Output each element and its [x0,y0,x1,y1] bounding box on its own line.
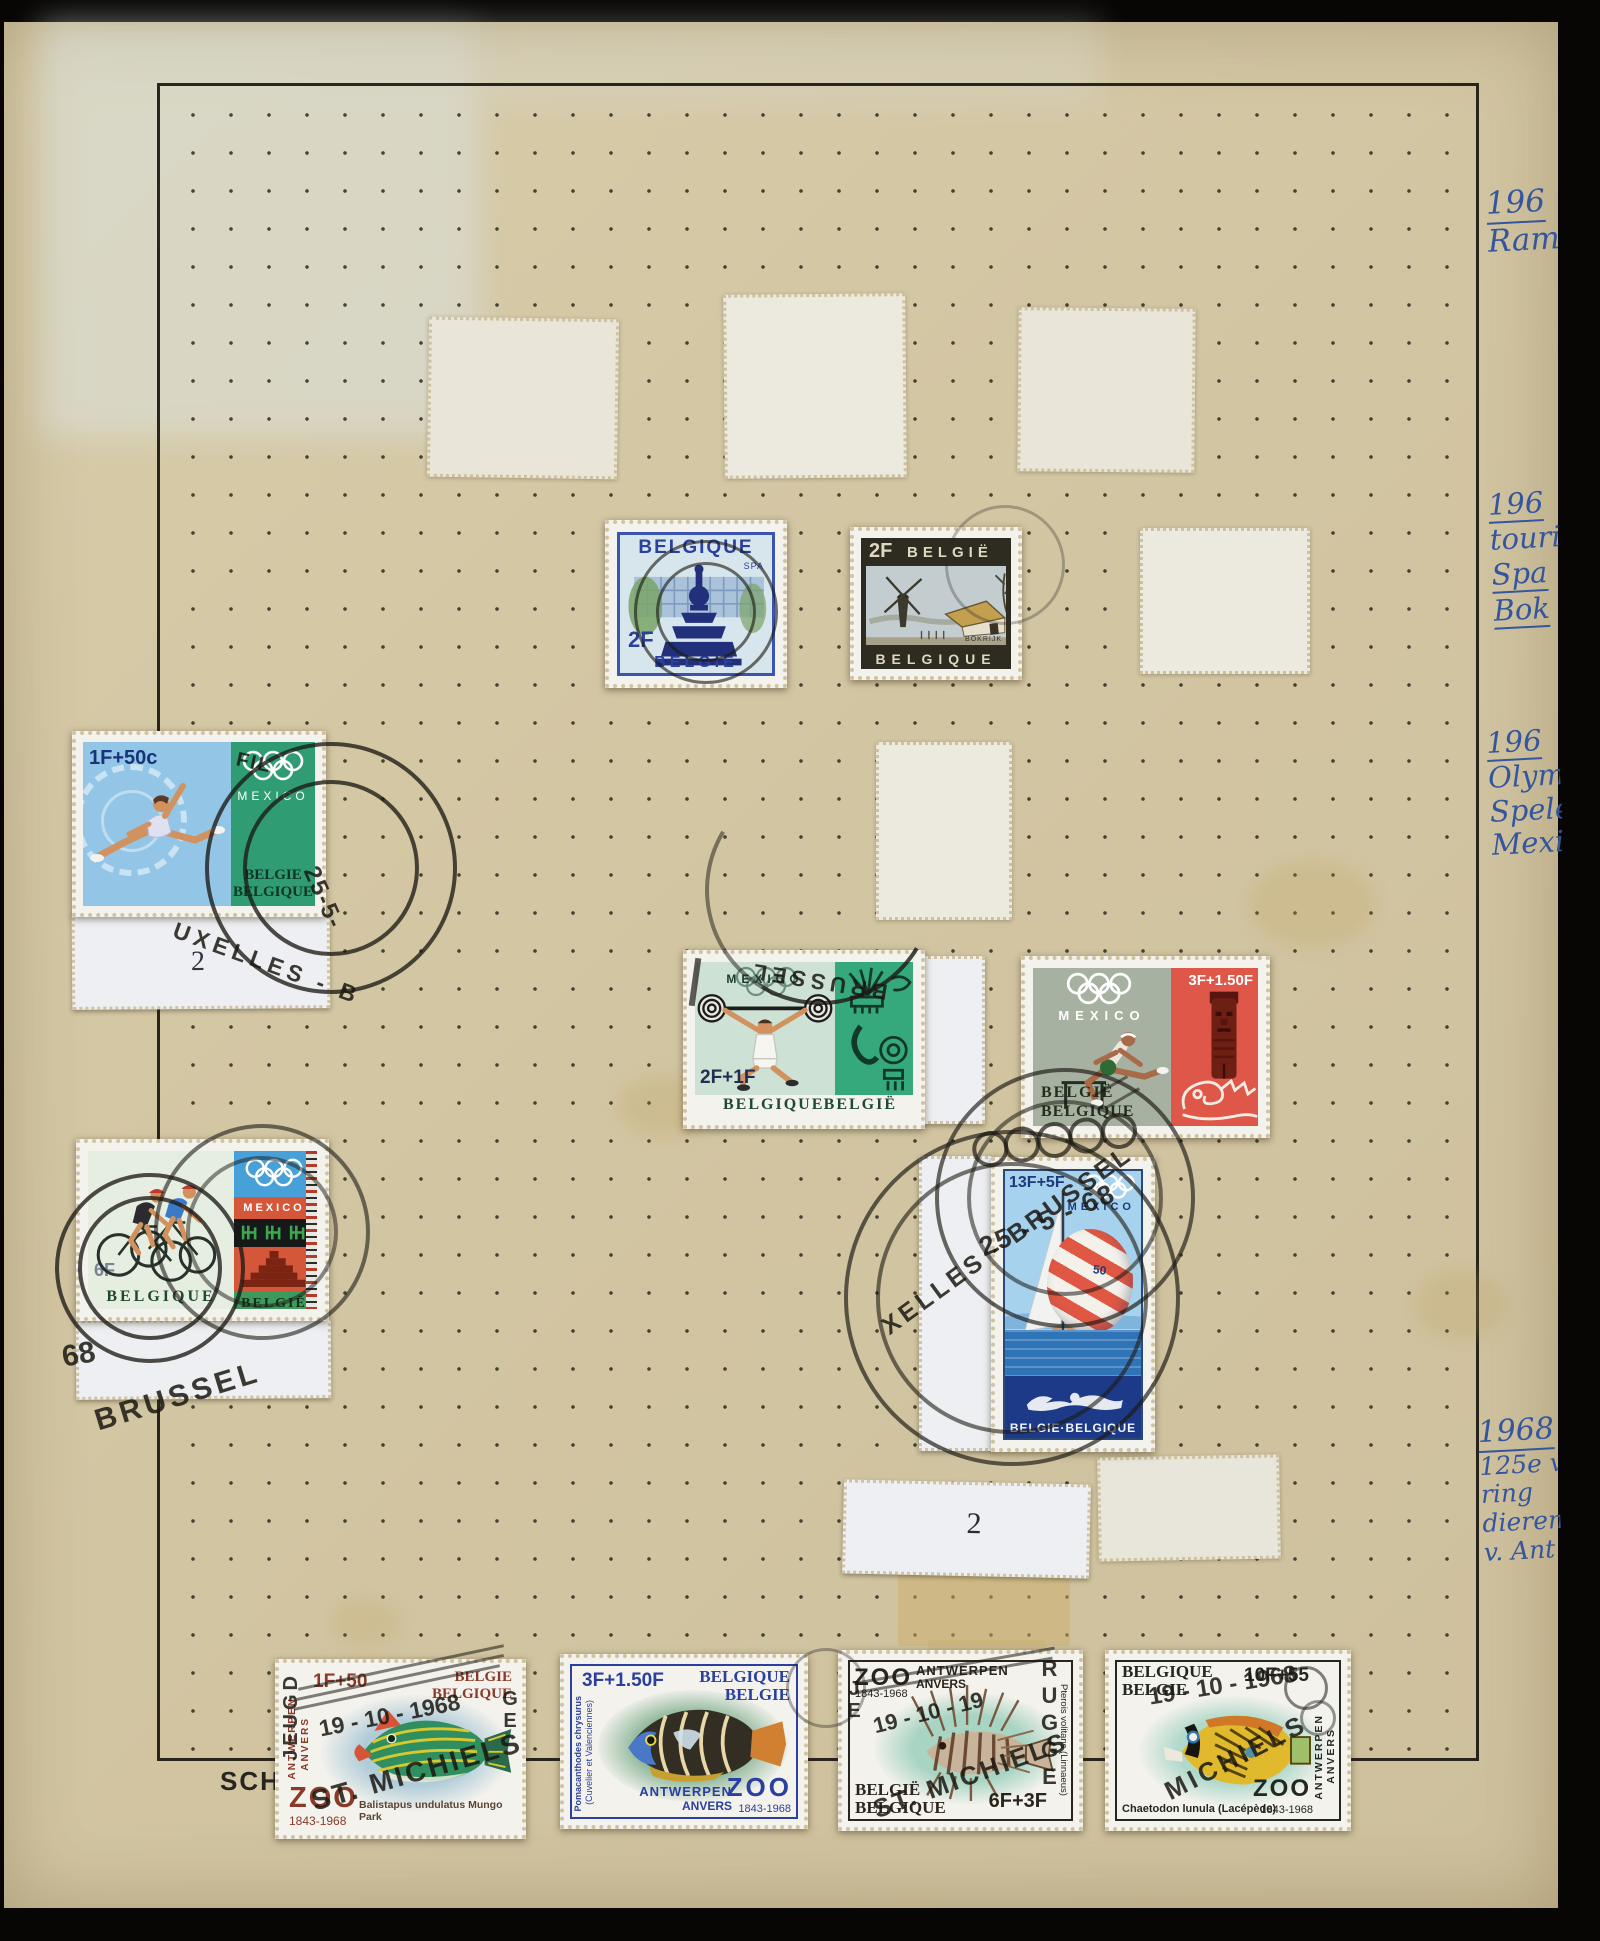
serpent-glyph-icon [1173,1068,1258,1124]
postmark-circle [186,1156,338,1308]
note3-line1: Olymp [1487,759,1561,796]
album-photo: SCHAU- 196 Ram 196 touri Spa Bok 196 Oly… [0,0,1600,1941]
bokrijk-value: 2F [869,540,892,563]
empty-mount [1017,307,1195,473]
fish4-years: 1843-1968 [1260,1804,1313,1816]
postmark-circle [656,562,756,662]
fish4-zoo: ZOO [1253,1775,1311,1803]
handwritten-note-4: 1968 125e ve ring dieren v. Ant [1477,1412,1565,1616]
fish2-zoo: ZOO [727,1772,792,1803]
weightlifter-bottom-band: BELGIQUE BELGIË [695,1095,913,1117]
note2-year: 196 [1487,486,1544,524]
cancel-left-text: JEUGD [280,1672,303,1761]
empty-mount [723,293,907,479]
cancel-left-text: JE [842,1678,865,1722]
fish2-city-1: ANTWERPEN [639,1784,732,1799]
postmark-year: 68 [59,1335,98,1374]
note2-line3: Bok [1493,592,1551,630]
weightlifter-value: 2F+1F [700,1067,755,1089]
handwritten-note-3: 196 Olymp Spele Mexi [1485,722,1566,906]
bokrijk-place-label: BOKRIJK [965,636,1002,643]
fish2-species-2: (Cuvelier et Valenciennes) [584,1700,594,1805]
plate-number: 2 [966,1507,982,1541]
handwritten-note-1: 196 Ram [1485,182,1563,306]
stain [330,1598,402,1648]
note3-line3: Mexi [1491,825,1565,862]
stain [1250,862,1375,947]
olympic-rings-icon [1063,972,1135,1006]
weightlifter-country-1: BELGIQUE [723,1096,824,1114]
postmark-fragment [1300,1700,1336,1736]
note3-line2: Spele [1489,792,1563,829]
fish2-species-1: Pomacanthodes chrysurus [573,1696,583,1812]
handwritten-note-2: 196 touri Spa Bok [1487,484,1567,677]
note4-line1: 125e ve [1479,1449,1558,1482]
empty-mount [1140,528,1310,674]
fish2-city-2: ANVERS [682,1799,732,1813]
fish2-country-2: BELGIE [699,1686,790,1704]
sheet-margin-plate2: 2 [842,1479,1091,1578]
gymnast-value: 1F+50c [89,747,157,770]
bokrijk-country-bottom: BELGIQUE [861,651,1011,667]
note1-year: 196 [1485,184,1546,225]
note4-year: 1968 [1477,1412,1555,1452]
fish2-years: 1843-1968 [738,1803,791,1815]
fish4-city-2: ANVERS [1325,1728,1337,1784]
stamp-zoo-angelfish: 3F+1.50F BELGIQUE BELGIE Pomacanthodes c… [560,1654,808,1829]
fish2-value: 3F+1.50F [582,1670,664,1692]
empty-mount [1097,1454,1281,1561]
hurdler-statue-panel: 3F+1.50F [1171,968,1258,1126]
cancel-right-text: RUGGE [1036,1656,1062,1791]
weightlifter-country-2: BELGIË [824,1096,897,1114]
fish2-country-1: BELGIQUE [699,1668,790,1686]
note3-year: 196 [1485,724,1542,762]
note1-line: Ram [1487,221,1561,260]
fish3-value: 6F+3F [989,1790,1047,1813]
cancel-right-text: GE [498,1688,521,1732]
fish1-species: Balistapus undulatus Mungo Park [359,1799,516,1823]
hurdler-value: 3F+1.50F [1188,972,1253,989]
note2-line1: touri [1489,521,1561,558]
note2-line2: Spa [1491,556,1549,594]
empty-mount [427,317,619,480]
weightlifter-sheet-margin [921,956,985,1124]
stain [1415,1270,1505,1340]
postmark-circle [945,505,1065,625]
fish4-species: Chaetodon lunula (Lacépède) [1122,1803,1276,1815]
note4-line4: v. Ant [1483,1535,1562,1568]
